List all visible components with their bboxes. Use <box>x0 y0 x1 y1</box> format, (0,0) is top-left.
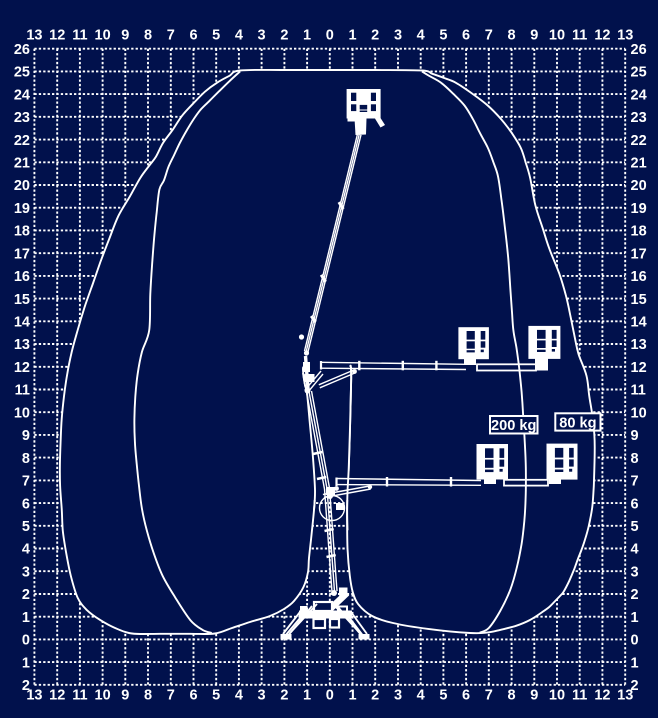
svg-text:2: 2 <box>631 587 639 603</box>
svg-text:23: 23 <box>14 110 30 126</box>
svg-text:5: 5 <box>212 688 220 704</box>
svg-text:6: 6 <box>22 496 30 512</box>
svg-text:24: 24 <box>631 87 647 103</box>
svg-text:17: 17 <box>631 246 647 262</box>
svg-text:6: 6 <box>189 28 197 44</box>
svg-text:10: 10 <box>631 405 647 421</box>
svg-text:1: 1 <box>303 688 311 704</box>
svg-text:5: 5 <box>439 688 447 704</box>
svg-text:80 kg: 80 kg <box>559 415 596 431</box>
svg-text:23: 23 <box>631 110 647 126</box>
svg-text:11: 11 <box>631 383 646 399</box>
svg-text:7: 7 <box>22 474 30 490</box>
svg-text:21: 21 <box>14 156 30 172</box>
svg-text:21: 21 <box>631 156 647 172</box>
svg-text:22: 22 <box>14 133 30 149</box>
svg-text:8: 8 <box>144 28 152 44</box>
svg-text:0: 0 <box>326 688 334 704</box>
svg-text:9: 9 <box>121 28 129 44</box>
svg-text:15: 15 <box>14 292 30 308</box>
svg-text:9: 9 <box>22 428 30 444</box>
svg-text:1: 1 <box>22 655 30 671</box>
svg-text:19: 19 <box>14 201 30 217</box>
svg-text:4: 4 <box>631 542 639 558</box>
svg-text:9: 9 <box>530 688 538 704</box>
svg-text:25: 25 <box>14 65 30 81</box>
svg-text:2: 2 <box>22 678 30 694</box>
svg-text:4: 4 <box>235 688 243 704</box>
svg-text:16: 16 <box>631 269 647 285</box>
svg-text:3: 3 <box>394 688 402 704</box>
svg-text:11: 11 <box>572 28 587 44</box>
svg-text:8: 8 <box>508 28 516 44</box>
svg-text:8: 8 <box>144 688 152 704</box>
svg-text:12: 12 <box>594 28 610 44</box>
svg-text:14: 14 <box>631 315 647 331</box>
svg-text:8: 8 <box>631 451 639 467</box>
svg-text:6: 6 <box>189 688 197 704</box>
svg-text:8: 8 <box>22 451 30 467</box>
svg-text:18: 18 <box>631 224 647 240</box>
svg-text:26: 26 <box>631 42 647 58</box>
svg-text:6: 6 <box>631 496 639 512</box>
svg-text:11: 11 <box>15 383 30 399</box>
svg-text:19: 19 <box>631 201 647 217</box>
svg-text:5: 5 <box>439 28 447 44</box>
svg-text:4: 4 <box>22 542 30 558</box>
svg-text:17: 17 <box>14 246 30 262</box>
svg-text:8: 8 <box>508 688 516 704</box>
svg-text:1: 1 <box>631 610 639 626</box>
svg-text:11: 11 <box>572 688 587 704</box>
svg-text:13: 13 <box>631 337 647 353</box>
svg-text:1: 1 <box>22 610 30 626</box>
svg-text:7: 7 <box>485 28 493 44</box>
svg-text:6: 6 <box>462 688 470 704</box>
svg-text:1: 1 <box>631 655 639 671</box>
svg-text:7: 7 <box>631 474 639 490</box>
svg-text:26: 26 <box>14 42 30 58</box>
svg-text:25: 25 <box>631 65 647 81</box>
svg-text:10: 10 <box>95 28 111 44</box>
svg-text:200 kg: 200 kg <box>491 418 536 434</box>
svg-text:20: 20 <box>631 178 647 194</box>
svg-text:0: 0 <box>631 633 639 649</box>
svg-text:1: 1 <box>303 28 311 44</box>
svg-text:11: 11 <box>72 688 87 704</box>
svg-text:2: 2 <box>631 678 639 694</box>
svg-text:14: 14 <box>14 315 30 331</box>
svg-text:10: 10 <box>95 688 111 704</box>
svg-text:2: 2 <box>280 28 288 44</box>
svg-text:9: 9 <box>121 688 129 704</box>
svg-text:24: 24 <box>14 87 30 103</box>
svg-text:0: 0 <box>326 28 334 44</box>
svg-text:3: 3 <box>394 28 402 44</box>
svg-text:12: 12 <box>49 28 65 44</box>
svg-text:7: 7 <box>167 688 175 704</box>
svg-text:12: 12 <box>594 688 610 704</box>
svg-text:9: 9 <box>631 428 639 444</box>
svg-text:3: 3 <box>258 28 266 44</box>
svg-text:1: 1 <box>348 28 356 44</box>
svg-text:0: 0 <box>22 633 30 649</box>
svg-text:11: 11 <box>72 28 87 44</box>
svg-text:6: 6 <box>462 28 470 44</box>
svg-text:15: 15 <box>631 292 647 308</box>
svg-text:20: 20 <box>14 178 30 194</box>
svg-text:3: 3 <box>258 688 266 704</box>
svg-text:10: 10 <box>14 405 30 421</box>
svg-text:10: 10 <box>549 688 565 704</box>
svg-text:10: 10 <box>549 28 565 44</box>
svg-text:3: 3 <box>631 564 639 580</box>
svg-text:7: 7 <box>167 28 175 44</box>
svg-text:12: 12 <box>49 688 65 704</box>
svg-text:7: 7 <box>485 688 493 704</box>
svg-text:5: 5 <box>212 28 220 44</box>
svg-text:5: 5 <box>22 519 30 535</box>
svg-text:18: 18 <box>14 224 30 240</box>
svg-text:1: 1 <box>348 688 356 704</box>
svg-text:2: 2 <box>371 688 379 704</box>
svg-text:12: 12 <box>14 360 30 376</box>
svg-text:13: 13 <box>14 337 30 353</box>
svg-text:4: 4 <box>417 688 425 704</box>
svg-text:2: 2 <box>371 28 379 44</box>
svg-text:4: 4 <box>417 28 425 44</box>
svg-text:4: 4 <box>235 28 243 44</box>
svg-text:5: 5 <box>631 519 639 535</box>
svg-text:9: 9 <box>530 28 538 44</box>
svg-text:2: 2 <box>280 688 288 704</box>
svg-text:3: 3 <box>22 564 30 580</box>
svg-text:12: 12 <box>631 360 647 376</box>
svg-text:16: 16 <box>14 269 30 285</box>
svg-text:2: 2 <box>22 587 30 603</box>
svg-text:22: 22 <box>631 133 647 149</box>
